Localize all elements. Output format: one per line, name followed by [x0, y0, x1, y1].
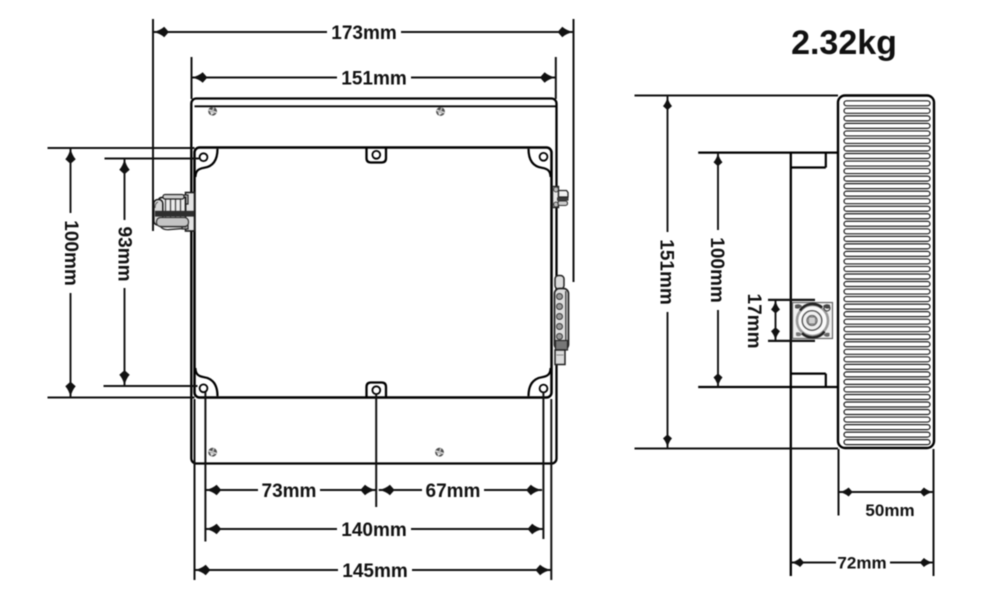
svg-text:140mm: 140mm — [341, 520, 407, 541]
svg-text:93mm: 93mm — [114, 227, 135, 282]
svg-text:67mm: 67mm — [426, 481, 481, 502]
svg-text:173mm: 173mm — [331, 23, 397, 44]
svg-text:145mm: 145mm — [342, 561, 408, 582]
svg-text:72mm: 72mm — [837, 554, 886, 573]
svg-text:151mm: 151mm — [656, 239, 677, 305]
svg-text:100mm: 100mm — [706, 237, 727, 303]
svg-text:2.32kg: 2.32kg — [791, 24, 897, 62]
svg-text:17mm: 17mm — [743, 294, 764, 349]
svg-text:50mm: 50mm — [865, 501, 914, 520]
svg-text:151mm: 151mm — [341, 69, 407, 90]
svg-text:100mm: 100mm — [60, 220, 81, 286]
svg-text:73mm: 73mm — [262, 481, 317, 502]
